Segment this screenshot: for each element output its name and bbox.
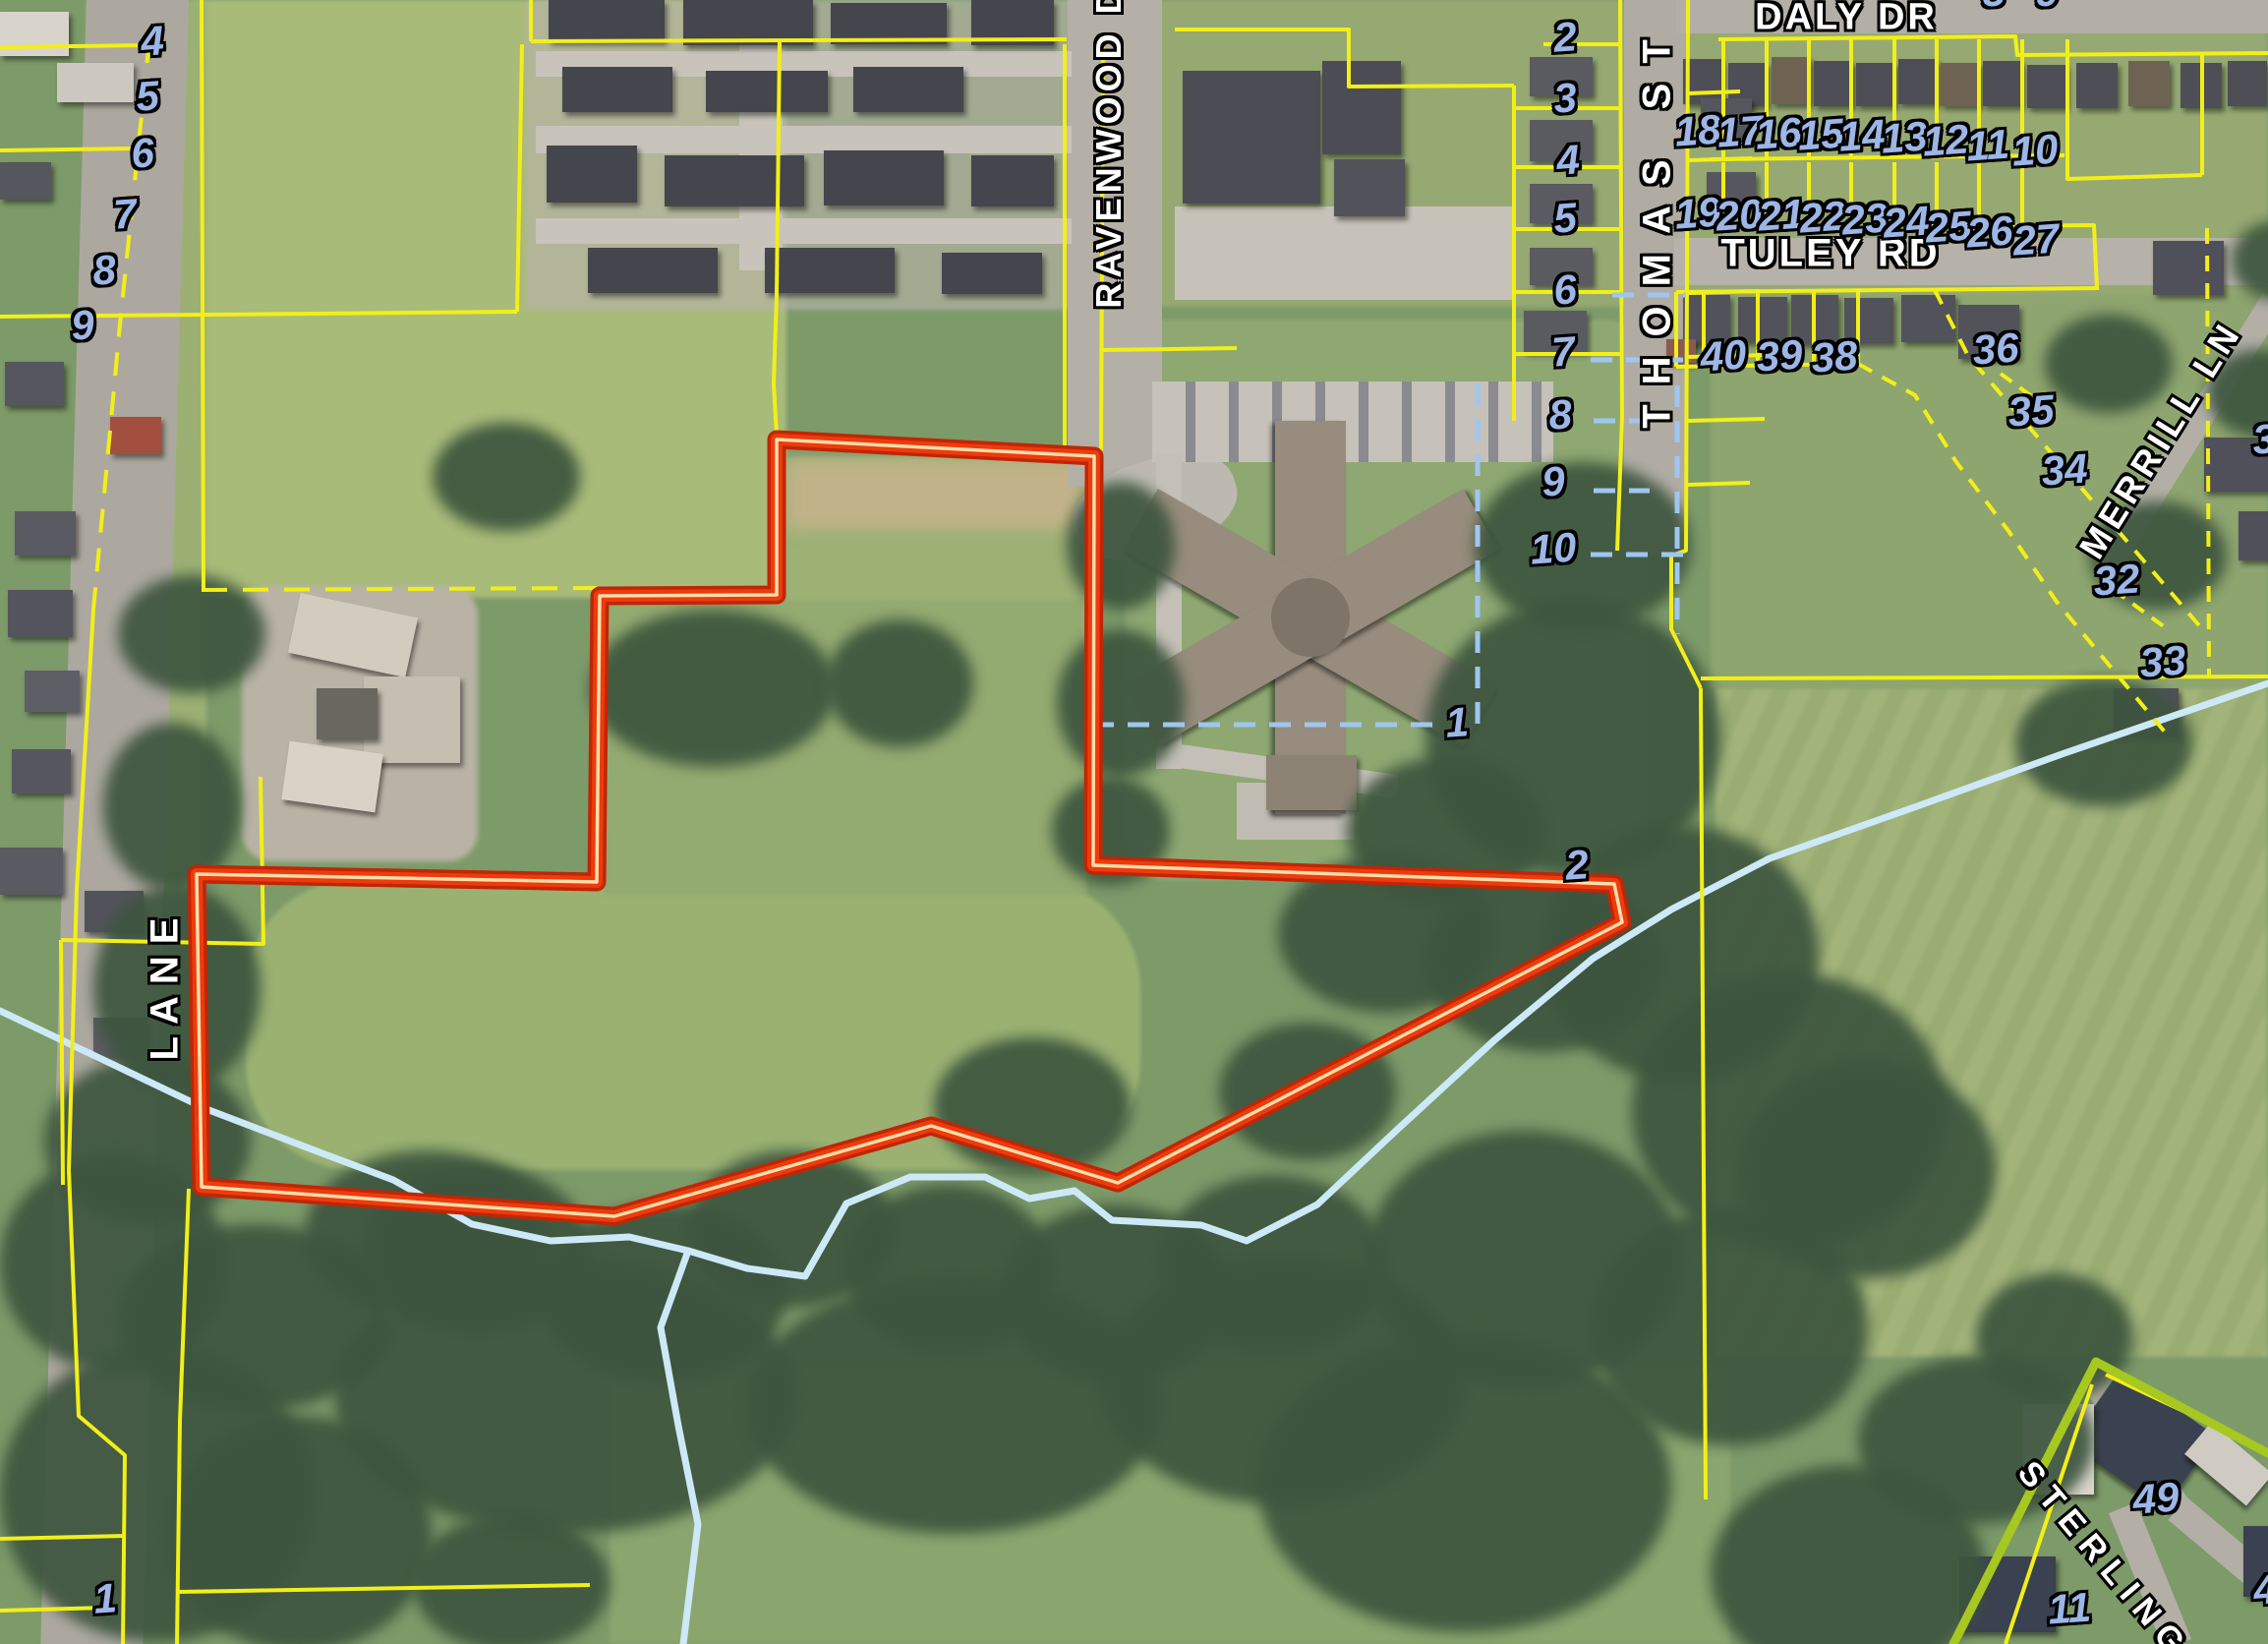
lot-number: 4 (1555, 136, 1582, 185)
lot-number: 33 (2138, 636, 2187, 686)
lot-number: 27 (2011, 214, 2061, 264)
lot-number: 3 (2251, 415, 2268, 464)
lot-number: 36 (1971, 323, 2020, 374)
lot-number: 11 (1965, 121, 2011, 171)
lot-number: 6 (1552, 265, 1579, 315)
lot-number: 38 (1810, 331, 1859, 382)
lot-number: 2 (1552, 13, 1579, 62)
lot-number: 1 (1444, 698, 1471, 747)
lot-number: 40 (1699, 330, 1748, 381)
lot-number: 39 (1755, 330, 1804, 381)
lot-number: 3 (1981, 0, 2007, 17)
lot-number: 8 (1547, 390, 1574, 440)
lot-numbers-layer: 4567892345678910181716151413121110192021… (0, 0, 2268, 1644)
lot-number: 9 (70, 301, 96, 350)
lot-number: 11 (2047, 1584, 2093, 1634)
lot-number: 49 (2131, 1473, 2181, 1523)
lot-number: 9 (1541, 457, 1567, 506)
lot-number: 7 (112, 190, 139, 239)
lot-number: 35 (2006, 385, 2056, 436)
lot-number: 10 (2010, 125, 2060, 175)
parcel-map-canvas[interactable]: DALY DRTULEY RDRAVENWOOD DRTHOMAS STLANE… (0, 0, 2268, 1644)
lot-number: 9 (2034, 0, 2061, 17)
lot-number: 4 (140, 17, 166, 66)
lot-number: 8 (91, 246, 118, 295)
lot-number: 7 (1550, 327, 1577, 377)
lot-number: 10 (1529, 523, 1578, 573)
lot-number: 34 (2040, 444, 2089, 495)
lot-number: 6 (130, 129, 156, 178)
lot-number: 32 (2092, 555, 2141, 605)
lot-number: 5 (1552, 194, 1579, 243)
lot-number: 4 (2252, 1565, 2268, 1615)
lot-number: 12 (1921, 115, 1970, 165)
lot-number: 2 (1564, 841, 1591, 890)
lot-number: 3 (1552, 74, 1579, 123)
lot-number: 26 (1965, 206, 2014, 257)
lot-number: 1 (92, 1574, 119, 1623)
lot-number: 5 (135, 72, 161, 121)
